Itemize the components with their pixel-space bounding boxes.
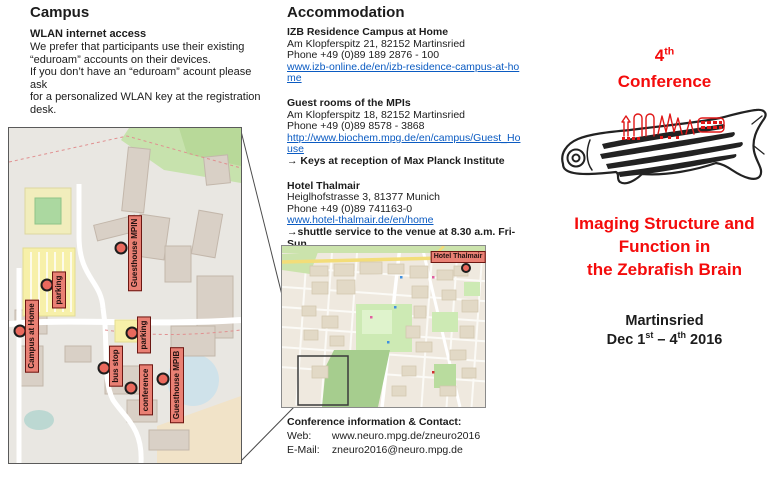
- entry-note: → Keys at reception of Max Planck Instit…: [287, 156, 523, 168]
- contact-email-row: E-Mail: zneuro2016@neuro.mpg.de: [287, 443, 527, 457]
- entry-name: Guest rooms of the MPIs: [287, 98, 523, 110]
- date-part: 2016: [686, 332, 722, 348]
- accommodation-entry: IZB Residence Campus at Home Am Klopfers…: [287, 27, 523, 85]
- map-marker-dot-hotel-thalmair: [461, 263, 471, 273]
- accommodation-heading: Accommodation: [287, 4, 405, 21]
- campus-map-image: [9, 128, 241, 463]
- main-title-line: Function in: [555, 235, 774, 258]
- map-label-conference: conference: [139, 365, 153, 416]
- entry-address: Heiglhofstrasse 3, 81377 Munich: [287, 192, 523, 204]
- web-label: Web:: [287, 429, 329, 443]
- email-label: E-Mail:: [287, 443, 329, 457]
- date-part: – 4: [653, 332, 677, 348]
- entry-name: IZB Residence Campus at Home: [287, 27, 523, 39]
- city-map-image: [282, 246, 485, 407]
- wlan-line: If you don’t have an “eduroam” acount pl…: [30, 66, 270, 91]
- entry-link[interactable]: www.izb-online.de/en/izb-residence-campu…: [287, 62, 523, 85]
- main-title-line: the Zebrafish Brain: [555, 258, 774, 281]
- accommodation-entry: Guest rooms of the MPIs Am Klopferspitz …: [287, 98, 523, 168]
- zebrafish-skyline-drawing: [556, 106, 772, 202]
- date-ordinal: th: [678, 330, 686, 340]
- contact-web-row: Web: www.neuro.mpg.de/zneuro2016: [287, 429, 527, 443]
- entry-phone: Phone +49 (0)89 8578 - 3868: [287, 121, 523, 133]
- wlan-line: desk.: [30, 104, 270, 117]
- map-label-hotel-thalmair: Hotel Thalmair: [431, 251, 486, 263]
- wlan-access-text: We prefer that participants use their ex…: [30, 41, 270, 117]
- date-part: Dec 1: [607, 332, 646, 348]
- wlan-line: “eduroam” accounts on their devices.: [30, 54, 270, 67]
- accommodation-entry: Hotel Thalmair Heiglhofstrasse 3, 81377 …: [287, 181, 523, 251]
- wlan-access-title: WLAN internet access: [30, 28, 146, 40]
- contact-title: Conference information & Contact:: [287, 415, 527, 429]
- conference-number-suffix: th: [664, 45, 674, 57]
- wlan-line: for a personalized WLAN key at the regis…: [30, 91, 270, 104]
- campus-map: Guesthouse MPIN parking Campus at Home p…: [8, 127, 242, 464]
- contact-block: Conference information & Contact: Web: w…: [287, 415, 527, 457]
- map-label-guesthouse-mpib: Guesthouse MPIB: [170, 347, 184, 423]
- city-map: Hotel Thalmair: [281, 245, 486, 408]
- campus-heading: Campus: [30, 4, 89, 21]
- conference-main-title: Imaging Structure and Function in the Ze…: [555, 212, 774, 281]
- conference-number-value: 4: [655, 46, 664, 65]
- conference-word: Conference: [555, 72, 774, 92]
- web-url[interactable]: www.neuro.mpg.de/zneuro2016: [332, 430, 480, 442]
- map-label-campus-at-home: Campus at Home: [25, 299, 39, 372]
- map-label-parking-1: parking: [52, 272, 66, 309]
- conference-date: Dec 1st – 4th 2016: [555, 332, 774, 348]
- conference-number: 4th: [555, 46, 774, 66]
- main-title-line: Imaging Structure and: [555, 212, 774, 235]
- email-address[interactable]: zneuro2016@neuro.mpg.de: [332, 444, 463, 456]
- map-label-bus-stop: bus stop: [109, 345, 123, 386]
- entry-link[interactable]: http://www.biochem.mpg.de/en/campus/Gues…: [287, 133, 523, 156]
- map-label-parking-2: parking: [137, 317, 151, 354]
- map-marker-dot-guesthouse-mpin: [115, 242, 128, 255]
- map-marker-dot-guesthouse-mpib: [157, 373, 170, 386]
- wlan-line: We prefer that participants use their ex…: [30, 41, 270, 54]
- map-label-guesthouse-mpin: Guesthouse MPIN: [128, 215, 142, 291]
- accommodation-list: IZB Residence Campus at Home Am Klopfers…: [287, 27, 523, 263]
- map-marker-dot-conference: [125, 382, 138, 395]
- conference-panel: 4th Conference: [555, 0, 774, 483]
- conference-location: Martinsried: [555, 313, 774, 329]
- conference-flyer: Campus WLAN internet access We prefer th…: [0, 0, 774, 483]
